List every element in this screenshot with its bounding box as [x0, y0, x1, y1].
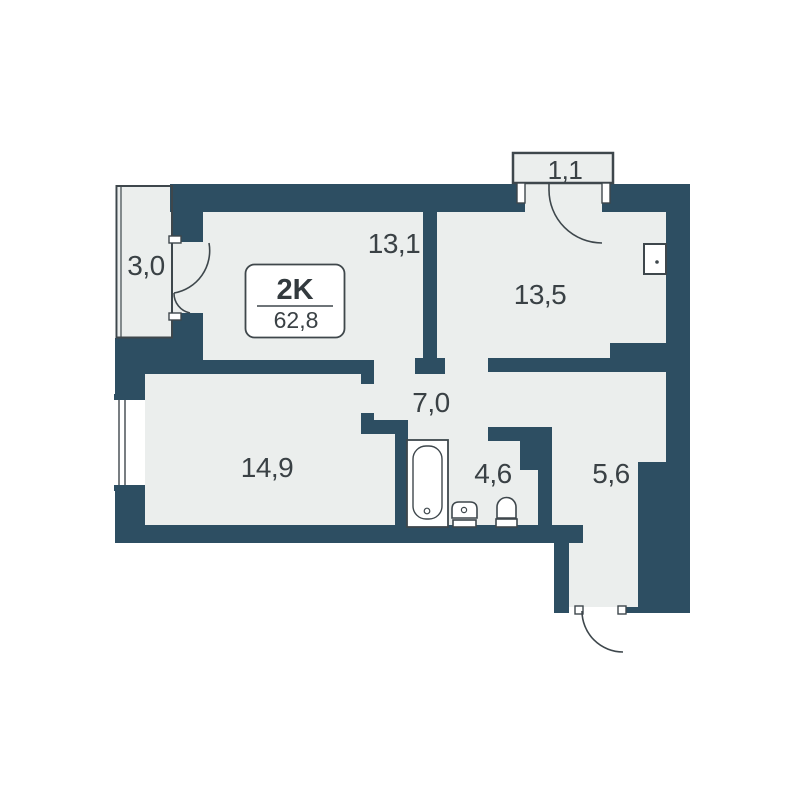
- door-post: [618, 606, 626, 614]
- apartment-type-label: 2K: [276, 274, 313, 306]
- room-label-bathroom: 4,6: [474, 458, 511, 489]
- apartment-badge: 2K 62,8: [246, 265, 345, 338]
- wall-bath-right-lower: [538, 470, 552, 527]
- electrical-panel-icon: [644, 244, 666, 274]
- floor-plan-page: 3,0 13,1 1,1 13,5 7,0 14,9 4,6 5,6 2K 62…: [0, 0, 800, 800]
- wall-partition-flange: [415, 358, 445, 374]
- room-label-balcony-top: 1,1: [548, 155, 583, 185]
- wall-right-upper: [666, 184, 690, 462]
- wall-living-room-top: [145, 360, 368, 374]
- wall-step-room-right: [610, 343, 690, 372]
- room-label-living-room: 14,9: [241, 452, 294, 483]
- sink-icon: [452, 502, 477, 527]
- room-label-room-right: 13,5: [514, 279, 567, 310]
- room-area-living-room: [145, 374, 395, 527]
- wall-bath-left: [395, 420, 408, 527]
- wall-room-right-bottom: [488, 358, 610, 372]
- room-label-entry-hall: 5,6: [592, 458, 629, 489]
- door-post: [169, 236, 181, 243]
- window-sill-top: [114, 394, 124, 400]
- door-post: [169, 313, 181, 320]
- room-label-balcony-left: 3,0: [127, 250, 164, 281]
- wall-entry-sill: [626, 607, 638, 613]
- room-label-bedroom: 13,1: [368, 228, 421, 259]
- wall-right-lower: [638, 462, 690, 613]
- total-area-label: 62,8: [274, 307, 319, 333]
- toilet-icon: [496, 498, 517, 528]
- wall-top: [170, 184, 690, 212]
- floor-plan: 3,0 13,1 1,1 13,5 7,0 14,9 4,6 5,6 2K 62…: [0, 0, 800, 800]
- window-sill-bottom: [114, 485, 124, 491]
- wall-partition-bedrooms: [423, 212, 437, 358]
- wall-entry-leg: [554, 543, 569, 613]
- wall-bath-top-right: [488, 427, 552, 441]
- room-label-hallway: 7,0: [412, 387, 449, 418]
- wall-left-upper: [115, 338, 145, 400]
- wall-flange-living-room: [361, 360, 374, 384]
- wall-bath-stub-flange: [361, 413, 374, 434]
- wall-bath-right-upper: [520, 441, 552, 470]
- bathtub-icon: [407, 440, 448, 527]
- wall-balcony-partition-upper: [172, 184, 203, 242]
- door-post: [602, 183, 610, 203]
- opening-balcony-top: [525, 184, 602, 212]
- door-arc-entrance: [582, 611, 623, 652]
- door-post: [517, 183, 525, 203]
